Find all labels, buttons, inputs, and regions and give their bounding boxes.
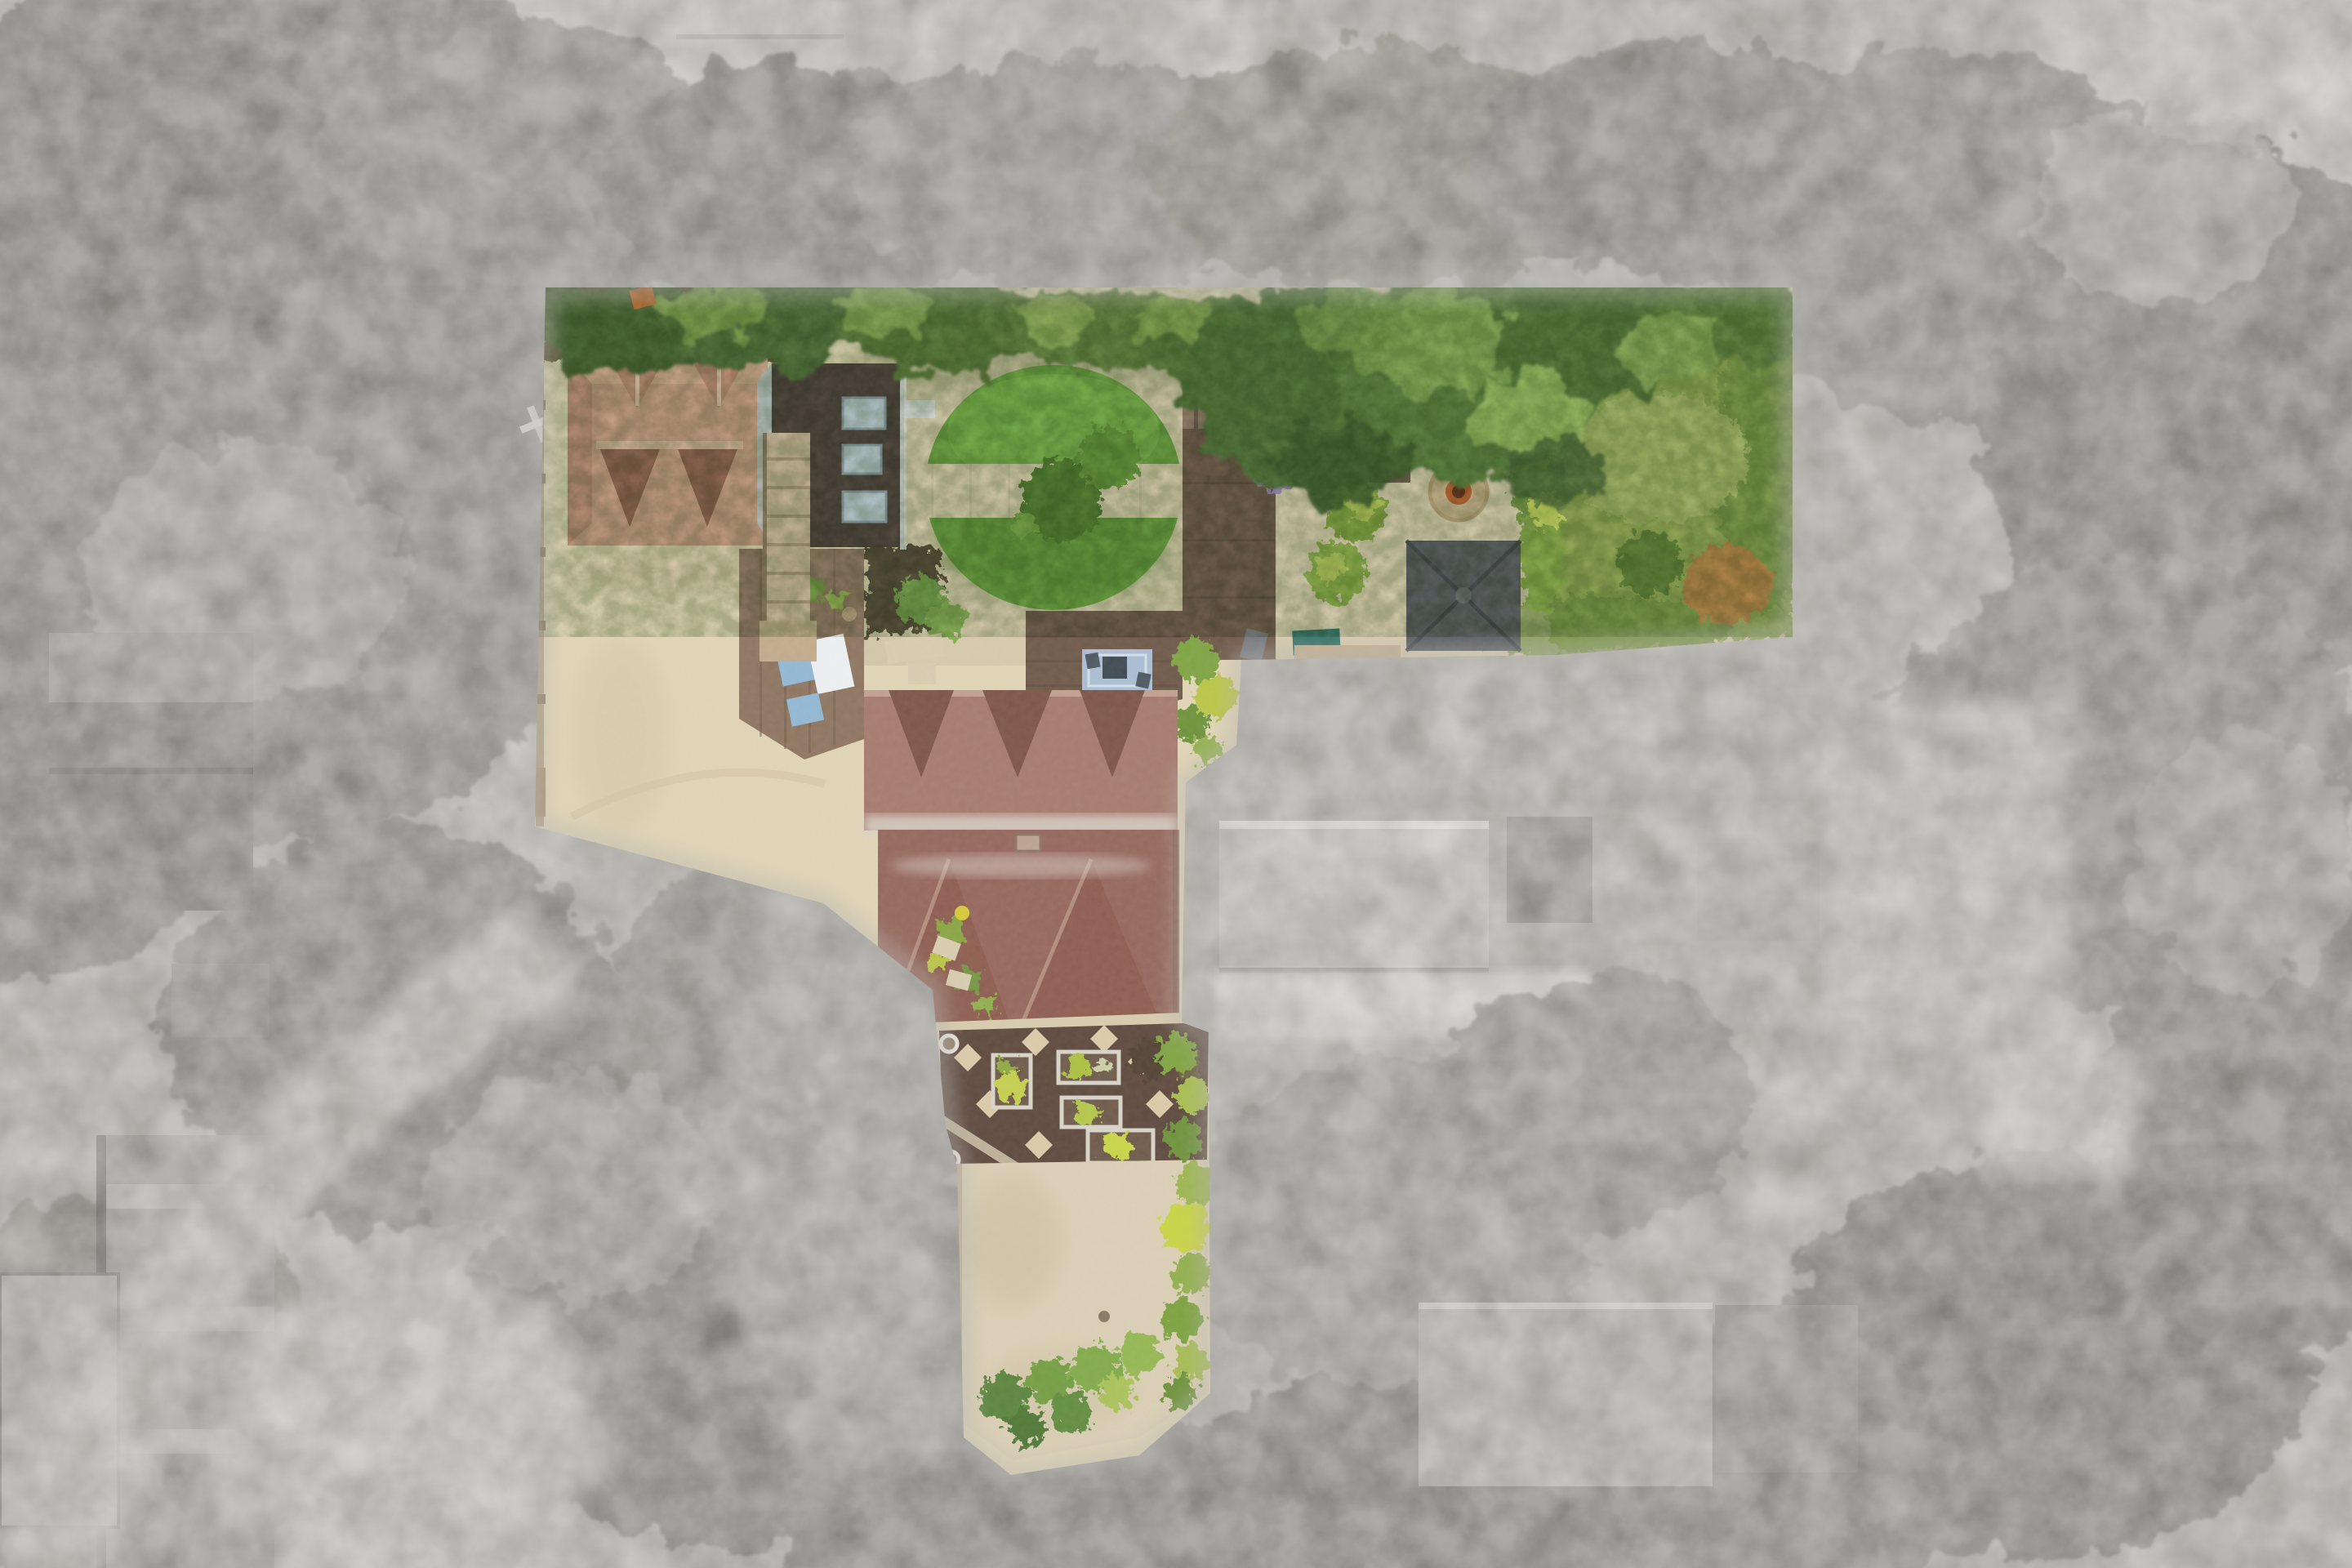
aerial-photo-stage xyxy=(0,0,2352,1568)
photo-grain-overlay-2 xyxy=(0,0,2352,1568)
aerial-drone-photo xyxy=(0,0,2352,1568)
